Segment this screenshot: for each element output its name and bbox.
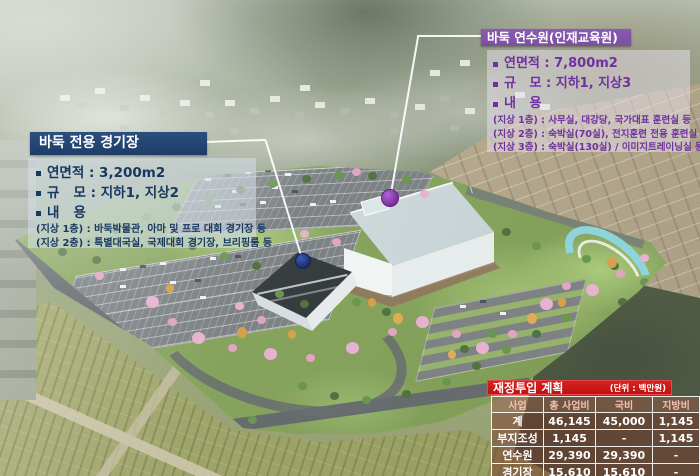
- finance-value-cell: 15,610: [544, 464, 596, 476]
- finance-plan-block: 재정투입 계획 (단위 : 백만원) 사업 총 사업비 국비 지방비 계46,1…: [487, 380, 700, 476]
- finance-value-cell: 46,145: [544, 413, 596, 430]
- finance-table-row: 연수원29,39029,390-: [492, 447, 700, 464]
- training-callout-panel: 연면적 : 7,800m2 규 모 : 지하1, 지상3 내 용 (지상 1층)…: [487, 50, 690, 152]
- finance-row-label: 계: [492, 413, 544, 430]
- infographic-canvas: 바둑 전용 경기장 연면적 : 3,200m2 규 모 : 지하1, 지상2 내…: [0, 0, 700, 476]
- finance-value-cell: 29,390: [596, 447, 653, 464]
- training-spec-text: 연면적 : 7,800m2: [504, 54, 618, 74]
- training-spec-scale: 규 모 : 지하1, 지상3: [493, 74, 690, 94]
- stadium-callout-title: 바둑 전용 경기장: [30, 132, 207, 155]
- bullet-square-icon: [493, 62, 498, 67]
- finance-row-label: 연수원: [492, 447, 544, 464]
- training-detail-floor3: (지상 3층) : 숙박실(130실) / 이미지트레이닝실 등: [493, 141, 690, 155]
- bullet-square-icon: [493, 102, 498, 107]
- finance-table-row: 계46,14545,0001,145: [492, 413, 700, 430]
- training-callout-leader-line: [417, 35, 482, 37]
- finance-value-cell: 15,610: [596, 464, 653, 476]
- finance-table-row: 경기장15,61015,610-: [492, 464, 700, 476]
- finance-value-cell: 1,145: [544, 430, 596, 447]
- finance-row-label: 부지조성: [492, 430, 544, 447]
- training-center-marker-dot-icon: [381, 189, 399, 207]
- stadium-spec-text: 내 용: [47, 203, 86, 223]
- finance-unit-label: (단위 : 백만원): [610, 382, 666, 394]
- bullet-square-icon: [493, 82, 498, 87]
- training-detail-floor1: (지상 1층) : 사무실, 대강당, 국가대표 훈련실 등: [493, 114, 690, 128]
- finance-value-cell: -: [596, 430, 653, 447]
- stadium-spec-scale: 규 모 : 지하1, 지상2: [36, 183, 256, 203]
- training-spec-text: 내 용: [504, 94, 542, 114]
- finance-header-cell: 사업: [492, 397, 544, 413]
- stadium-detail-floor2: (지상 2층) : 특별대국실, 국제대회 경기장, 브리핑룸 등: [36, 237, 256, 251]
- training-callout-title: 바둑 연수원(인재교육원): [481, 29, 631, 46]
- finance-value-cell: -: [653, 447, 700, 464]
- finance-title-bar: 재정투입 계획 (단위 : 백만원): [487, 380, 672, 395]
- finance-value-cell: 45,000: [596, 413, 653, 430]
- stadium-callout-panel: 연면적 : 3,200m2 규 모 : 지하1, 지상2 내 용 (지상 1층)…: [28, 158, 256, 248]
- finance-table-body: 계46,14545,0001,145부지조성1,145-1,145연수원29,3…: [492, 413, 700, 476]
- finance-table-row: 부지조성1,145-1,145: [492, 430, 700, 447]
- bullet-square-icon: [36, 171, 41, 176]
- finance-header-cell: 총 사업비: [544, 397, 596, 413]
- stadium-detail-floor1: (지상 1층) : 바둑박물관, 아마 및 프로 대회 경기장 등: [36, 223, 256, 237]
- finance-header-row: 사업 총 사업비 국비 지방비: [492, 397, 700, 413]
- finance-title: 재정투입 계획: [493, 379, 563, 396]
- finance-row-label: 경기장: [492, 464, 544, 476]
- training-spec-contents: 내 용: [493, 94, 690, 114]
- stadium-spec-text: 연면적 : 3,200m2: [47, 163, 165, 183]
- stadium-marker-dot-icon: [295, 253, 311, 269]
- finance-header-cell: 지방비: [653, 397, 700, 413]
- bullet-square-icon: [36, 191, 41, 196]
- training-spec-text: 규 모 : 지하1, 지상3: [504, 74, 631, 94]
- finance-value-cell: 1,145: [653, 413, 700, 430]
- finance-value-cell: 1,145: [653, 430, 700, 447]
- finance-value-cell: -: [653, 464, 700, 476]
- training-detail-floor2: (지상 2층) : 숙박실(70실), 전지훈련 전용 훈련실 등: [493, 128, 690, 142]
- bullet-square-icon: [36, 211, 41, 216]
- stadium-spec-text: 규 모 : 지하1, 지상2: [47, 183, 179, 203]
- finance-table: 사업 총 사업비 국비 지방비 계46,14545,0001,145부지조성1,…: [491, 396, 700, 476]
- finance-header-cell: 국비: [596, 397, 653, 413]
- stadium-spec-contents: 내 용: [36, 203, 256, 223]
- finance-value-cell: 29,390: [544, 447, 596, 464]
- training-spec-floor-area: 연면적 : 7,800m2: [493, 54, 690, 74]
- stadium-spec-floor-area: 연면적 : 3,200m2: [36, 163, 256, 183]
